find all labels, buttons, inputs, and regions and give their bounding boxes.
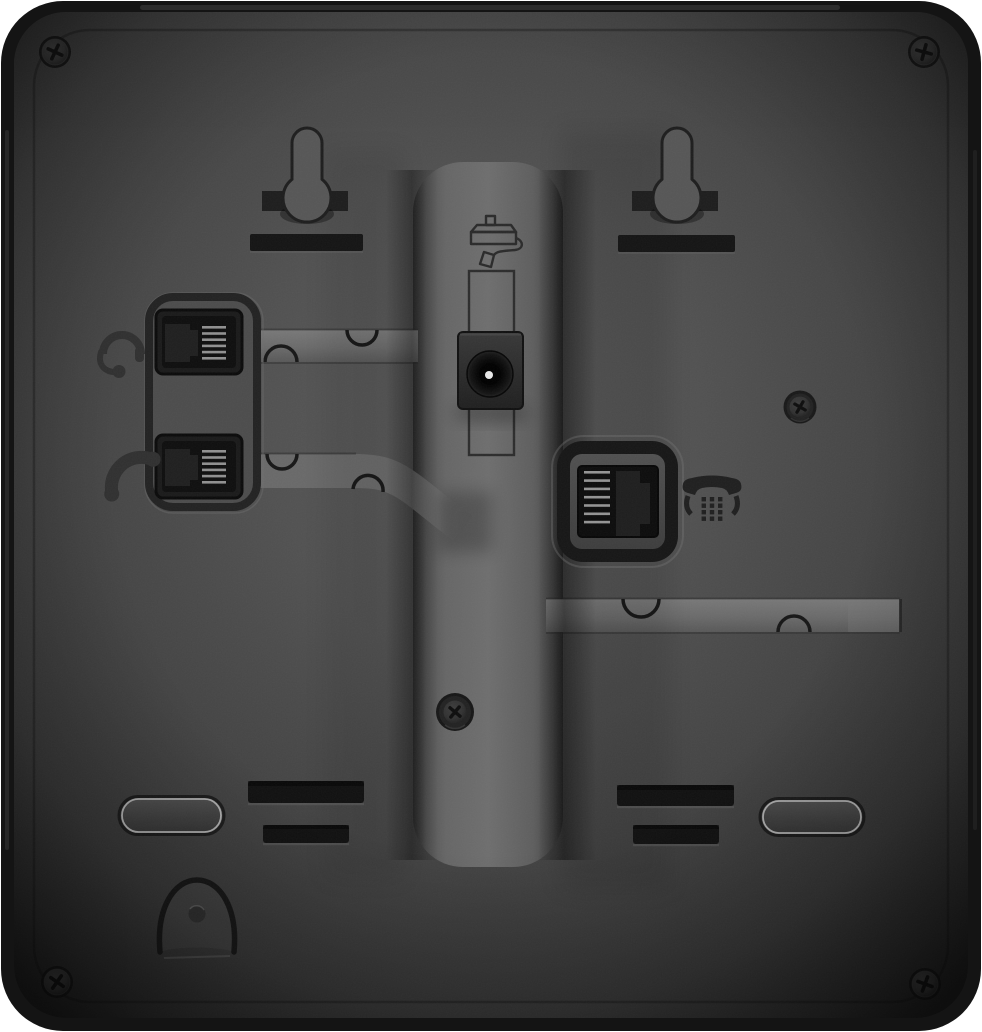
device-rear-panel-photo — [0, 0, 982, 1032]
chassis-edge-highlight-left — [5, 130, 9, 850]
panel-features — [14, 12, 968, 1018]
photo-stage — [0, 0, 982, 1032]
vignette-overlay — [14, 12, 968, 1018]
chassis-edge-highlight-top — [140, 5, 840, 10]
chassis-edge-highlight-right — [973, 150, 977, 830]
